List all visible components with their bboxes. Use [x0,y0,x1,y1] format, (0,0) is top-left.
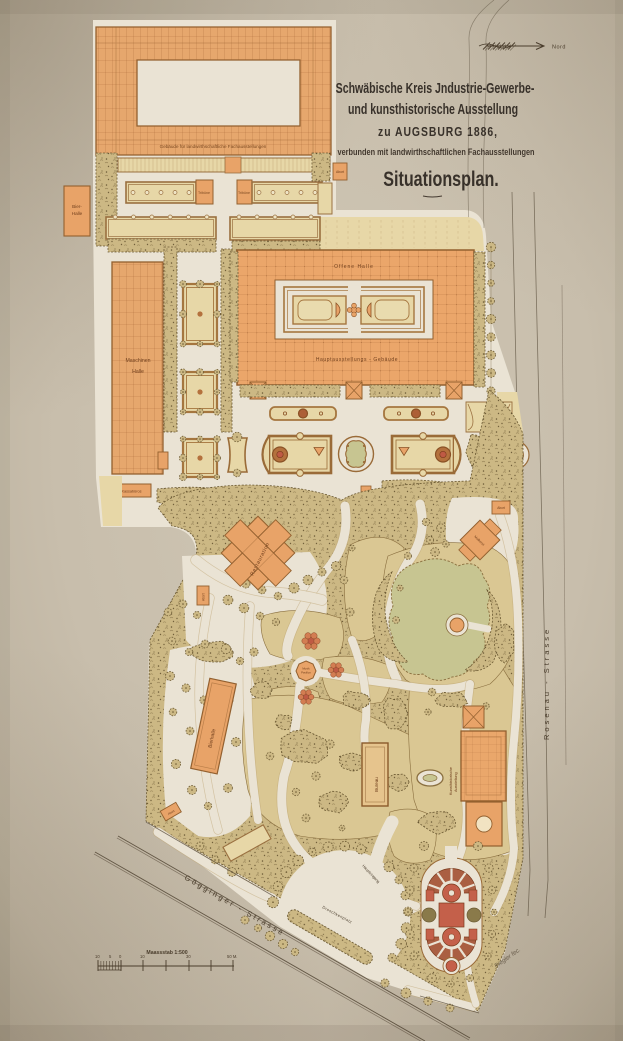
svg-text:Maassstab 1:500: Maassstab 1:500 [146,950,187,956]
svg-text:10: 10 [140,954,145,959]
svg-text:Offene Halle: Offene Halle [334,264,374,270]
svg-text:Bier-: Bier- [72,204,82,209]
svg-text:50 M.: 50 M. [227,954,237,959]
svg-text:Situationsplan.: Situationsplan. [383,168,499,192]
svg-text:Kassabüros: Kassabüros [121,490,141,494]
svg-text:Rosenau - Strasse: Rosenau - Strasse [542,627,551,740]
svg-text:Abort: Abort [336,170,344,174]
svg-text:verbunden mit landwirthschaftl: verbunden mit landwirthschaftlichen Fach… [337,146,534,157]
svg-text:Hauptausstellungs - Gebäude: Hauptausstellungs - Gebäude [316,357,398,363]
svg-text:Ausstellung: Ausstellung [454,772,458,792]
svg-text:Schwäbische Kreis Jndustrie-Ge: Schwäbische Kreis Jndustrie-Gewerbe- [336,80,535,96]
svg-text:Bureau: Bureau [374,777,379,792]
svg-text:10: 10 [95,954,100,959]
svg-text:Gebäude für landwirthschaftlic: Gebäude für landwirthschaftliche Fachaus… [160,144,267,149]
svg-text:Pavillon: Pavillon [301,671,311,675]
svg-text:und kunsthistorische Ausstellu: und kunsthistorische Ausstellung [348,101,518,117]
svg-text:Tribüne: Tribüne [198,191,210,195]
svg-text:Abort: Abort [202,593,206,601]
svg-text:Abort: Abort [497,506,505,510]
svg-text:zu AUGSBURG 1886,: zu AUGSBURG 1886, [378,125,498,139]
svg-text:Halle: Halle [132,369,144,375]
svg-text:Kunsthistorische: Kunsthistorische [449,767,453,795]
svg-text:Halle: Halle [72,211,83,216]
svg-text:Maschinen: Maschinen [125,358,150,364]
svg-text:Tribüne: Tribüne [238,191,250,195]
svg-text:Nord: Nord [552,45,566,51]
